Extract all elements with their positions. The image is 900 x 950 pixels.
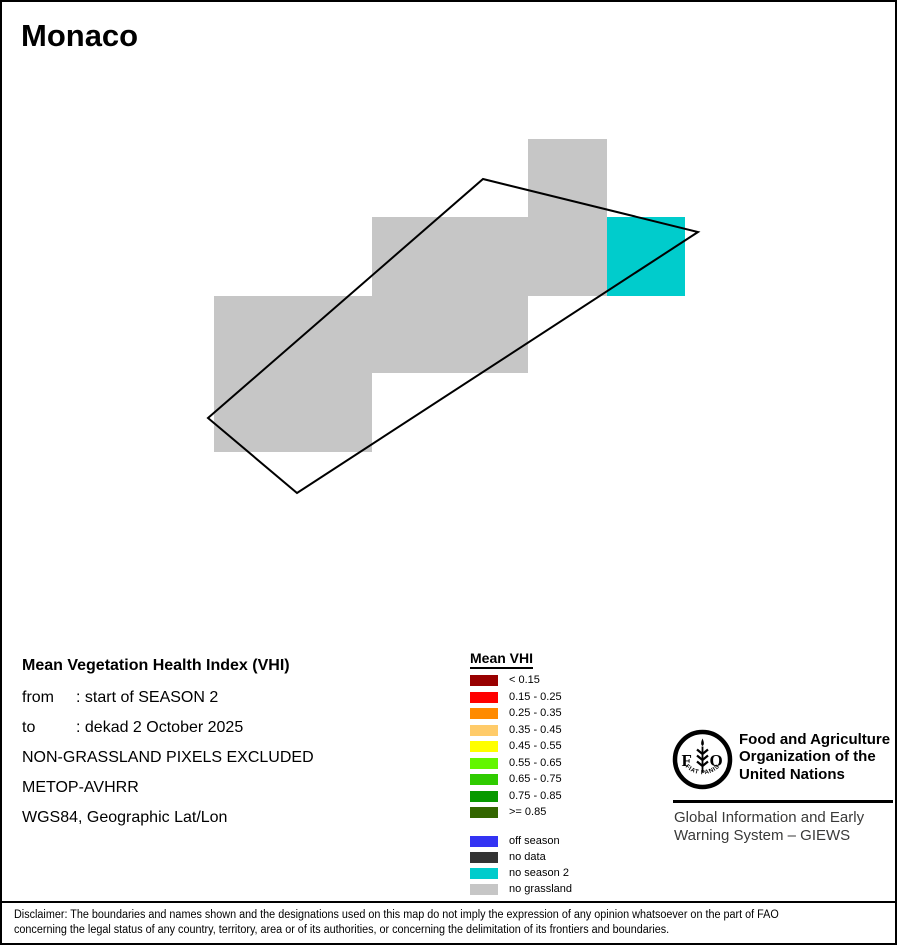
legend-class-row: >= 0.85: [470, 807, 562, 818]
legend-extra-class-label: no data: [509, 852, 546, 863]
fao-org-name: Food and Agriculture Organization of the…: [739, 731, 890, 783]
legend-class-row: 0.25 - 0.35: [470, 708, 562, 719]
info-to-value: : dekad 2 October 2025: [76, 719, 243, 736]
legend-vhi: Mean VHI < 0.150.15 - 0.250.25 - 0.350.3…: [470, 650, 562, 824]
disclaimer-line: Disclaimer: The boundaries and names sho…: [14, 908, 888, 923]
fao-logo-icon: F O FIAT PANIS: [672, 729, 733, 790]
legend-extra-class-row: no grassland: [470, 884, 572, 895]
legend-class-swatch: [470, 807, 498, 818]
info-excluded-line: NON-GRASSLAND PIXELS EXCLUDED: [22, 749, 314, 766]
disclaimer-separator: [2, 901, 895, 903]
legend-extra-classes: off seasonno datano season 2no grassland: [470, 836, 572, 900]
disclaimer: Disclaimer: The boundaries and names sho…: [14, 908, 888, 937]
legend-class-label: 0.35 - 0.45: [509, 725, 562, 736]
map-cell-no-grassland: [528, 139, 607, 217]
info-to-label: to: [22, 719, 76, 736]
page: Monaco Mean Vegetation Health Index (VHI…: [0, 0, 900, 950]
map-canvas: [0, 0, 900, 950]
legend-class-label: 0.75 - 0.85: [509, 791, 562, 802]
legend-class-swatch: [470, 675, 498, 686]
legend-class-swatch: [470, 758, 498, 769]
legend-class-swatch: [470, 725, 498, 736]
legend-class-label: 0.65 - 0.75: [509, 774, 562, 785]
legend-class-swatch: [470, 791, 498, 802]
info-from-row: from: start of SEASON 2: [22, 689, 218, 706]
giews-caption: Global Information and Early Warning Sys…: [674, 809, 864, 844]
legend-extra-class-swatch: [470, 884, 498, 895]
legend-class-row: < 0.15: [470, 675, 562, 686]
legend-class-label: 0.55 - 0.65: [509, 758, 562, 769]
info-projection-line: WGS84, Geographic Lat/Lon: [22, 809, 227, 826]
map-cell-no-grassland: [214, 373, 372, 452]
legend-extra-class-label: no season 2: [509, 868, 569, 879]
legend-extra-class-row: no season 2: [470, 868, 572, 879]
fao-divider: [673, 800, 893, 803]
legend-extra-class-label: off season: [509, 836, 560, 847]
fao-org-line: United Nations: [739, 766, 890, 783]
info-sensor-line: METOP-AVHRR: [22, 779, 139, 796]
legend-class-swatch: [470, 708, 498, 719]
legend-class-row: 0.35 - 0.45: [470, 725, 562, 736]
fao-org-line: Organization of the: [739, 748, 890, 765]
legend-class-label: 0.25 - 0.35: [509, 708, 562, 719]
legend-extra-class-swatch: [470, 852, 498, 863]
disclaimer-line: concerning the legal status of any count…: [14, 923, 888, 938]
legend-class-swatch: [470, 692, 498, 703]
legend-class-label: 0.45 - 0.55: [509, 741, 562, 752]
legend-extra-class-swatch: [470, 836, 498, 847]
legend-title: Mean VHI: [470, 651, 533, 669]
legend-extra-class-label: no grassland: [509, 884, 572, 895]
legend-class-row: 0.55 - 0.65: [470, 758, 562, 769]
legend-class-row: 0.15 - 0.25: [470, 692, 562, 703]
info-heading: Mean Vegetation Health Index (VHI): [22, 657, 290, 674]
legend-class-row: 0.75 - 0.85: [470, 791, 562, 802]
legend-class-row: 0.65 - 0.75: [470, 774, 562, 785]
legend-class-swatch: [470, 741, 498, 752]
fao-org-line: Food and Agriculture: [739, 731, 890, 748]
info-from-label: from: [22, 689, 76, 706]
legend-vhi-classes: < 0.150.15 - 0.250.25 - 0.350.35 - 0.450…: [470, 675, 562, 818]
info-from-value: : start of SEASON 2: [76, 689, 218, 706]
legend-extra-class-row: off season: [470, 836, 572, 847]
legend-class-swatch: [470, 774, 498, 785]
giews-line: Warning System – GIEWS: [674, 827, 864, 845]
map-cell-no-grassland: [214, 296, 528, 373]
legend-extra-class-swatch: [470, 868, 498, 879]
legend-class-label: 0.15 - 0.25: [509, 692, 562, 703]
legend-class-label: >= 0.85: [509, 807, 546, 818]
legend-extra-class-row: no data: [470, 852, 572, 863]
map-cell-no-grassland: [372, 217, 607, 296]
legend-class-row: 0.45 - 0.55: [470, 741, 562, 752]
giews-line: Global Information and Early: [674, 809, 864, 827]
legend-class-label: < 0.15: [509, 675, 540, 686]
info-to-row: to: dekad 2 October 2025: [22, 719, 243, 736]
